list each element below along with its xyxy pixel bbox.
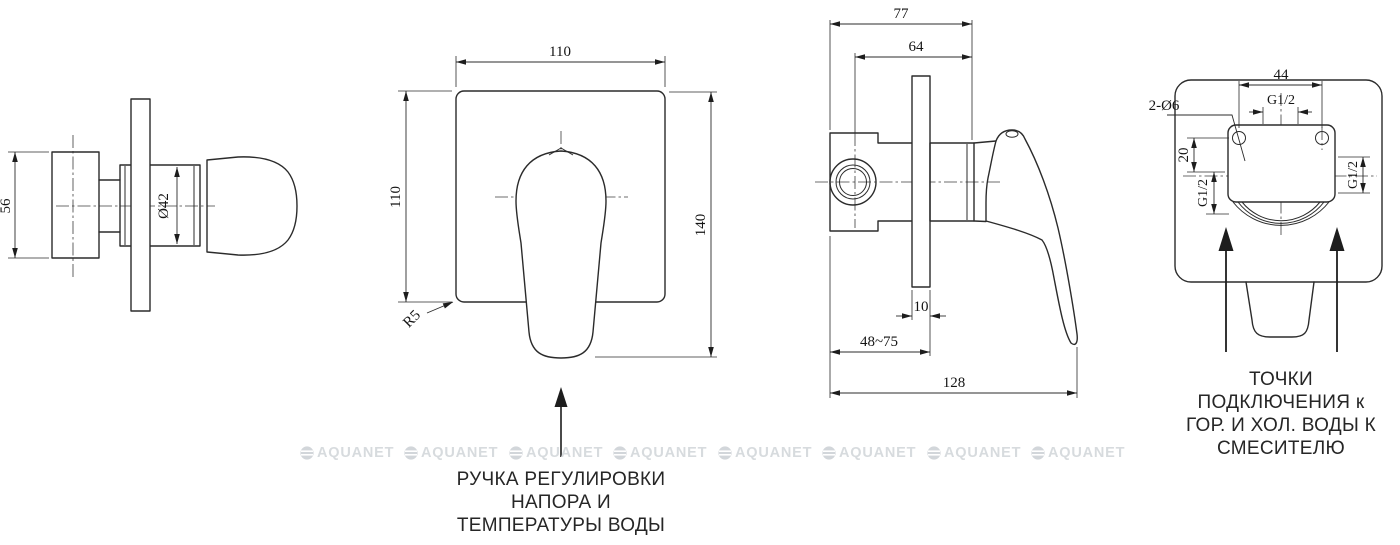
view3-dim-depth-body: 64 [855,39,972,57]
dim-44-label: 44 [1274,67,1290,83]
aquanet-watermark: AQUANET [509,445,603,461]
aquanet-watermark: AQUANET [718,445,812,461]
view1-valve-body [52,152,99,258]
connection-callout-line3: ГОР. И ХОЛ. ВОДЫ К [1178,414,1384,437]
dim-110-top-label: 110 [549,44,571,60]
watermark-label: AQUANET [630,445,707,461]
aquanet-watermark: AQUANET [613,445,707,461]
view4-connection-arrows [1219,227,1345,352]
connection-callout-line2: ПОДКЛЮЧЕНИЯ к [1178,391,1384,414]
aquanet-logo-icon [822,446,836,460]
aquanet-watermark: AQUANET [822,445,916,461]
watermark-label: AQUANET [735,445,812,461]
view3-dim-depth-full: 77 [830,6,972,140]
view4-dim-thread-left: G1/2 [1196,172,1229,214]
aquanet-watermark: AQUANET [927,445,1021,461]
view4-dim-offset: 20 [1176,138,1229,172]
aquanet-logo-icon [927,446,941,460]
view3-profile-view: 77 64 10 48~75 128 [815,6,1077,398]
dim-g12-left-label: G1/2 [1196,179,1211,207]
dim-g12-top-label: G1/2 [1267,93,1295,108]
view4-dim-thread-right: G1/2 [1338,157,1370,193]
up-arrow-icon [1330,227,1345,251]
handle-callout-line3: ТЕМПЕРАТУРЫ ВОДЫ [448,514,674,537]
aquanet-logo-icon [300,446,314,460]
connection-callout-line4: СМЕСИТЕЛЮ [1178,437,1384,460]
view1-escutcheon-plate [131,99,150,311]
handle-callout-text: РУЧКА РЕГУЛИРОВКИ НАПОРА И ТЕМПЕРАТУРЫ В… [448,468,674,537]
dim-48-75-label: 48~75 [860,334,898,350]
dim-g12-right-label: G1/2 [1346,161,1361,189]
aquanet-logo-icon [1031,446,1045,460]
watermark-label: AQUANET [317,445,394,461]
view4-handle-protrusion [1246,282,1314,337]
view1-dim-diameter: Ø42 [156,167,177,244]
view3-escutcheon-plate [912,76,930,287]
connection-callout-text: ТОЧКИ ПОДКЛЮЧЕНИЯ к ГОР. И ХОЛ. ВОДЫ К С… [1178,368,1384,460]
aquanet-watermark: AQUANET [1031,445,1125,461]
view4-dim-thread-top: G1/2 [1249,93,1312,124]
handle-callout-line2: НАПОРА И [448,491,674,514]
dim-64-label: 64 [909,39,925,55]
dim-2-d6-label: 2-Ø6 [1149,98,1180,114]
watermark-label: AQUANET [526,445,603,461]
view2-front-view: 110 110 140 R5 [388,44,717,457]
dim-20-label: 20 [1176,148,1192,163]
view2-dim-height: 110 [388,91,452,302]
dim-77-label: 77 [894,6,910,22]
connection-callout-line1: ТОЧКИ [1178,368,1384,391]
view2-dim-width: 110 [456,44,665,87]
view4-rear-view: 44 G1/2 2-Ø6 20 G1/2 [1149,67,1382,352]
technical-drawing-canvas: 56 Ø42 110 110 [0,0,1400,545]
view1-dim-height: 56 [0,152,49,258]
aquanet-logo-icon [718,446,732,460]
watermark-label: AQUANET [421,445,498,461]
up-arrow-icon [1219,227,1234,251]
dim-10-label: 10 [914,299,929,315]
watermark-label: AQUANET [944,445,1021,461]
view3-lever-handle [986,130,1077,344]
watermark-label: AQUANET [839,445,916,461]
aquanet-logo-icon [404,446,418,460]
dim-56-label: 56 [0,198,14,214]
view1-handle-knob [207,157,297,255]
aquanet-watermark: AQUANET [300,445,394,461]
view3-dim-length: 128 [830,347,1077,398]
aquanet-logo-icon [613,446,627,460]
dim-110-left-label: 110 [388,186,404,208]
dim-140-label: 140 [693,214,709,237]
aquanet-logo-icon [509,446,523,460]
view3-handle-button [1006,131,1018,137]
handle-callout-line1: РУЧКА РЕГУЛИРОВКИ [448,468,674,491]
view4-mounting-bracket [1228,125,1335,202]
view2-handle-front [516,151,606,358]
drawing-lineart: 56 Ø42 110 110 [0,0,1400,545]
view3-dim-plate-thickness: 10 [896,290,946,356]
view1-side-view: 56 Ø42 [0,99,297,311]
dim-42-label: Ø42 [156,193,172,219]
aquanet-watermark: AQUANET [404,445,498,461]
view2-corner-radius: R5 [400,302,453,331]
dim-128-label: 128 [943,375,966,391]
dim-r5-label: R5 [400,307,424,331]
up-arrow-icon [555,387,568,407]
watermark-label: AQUANET [1048,445,1125,461]
